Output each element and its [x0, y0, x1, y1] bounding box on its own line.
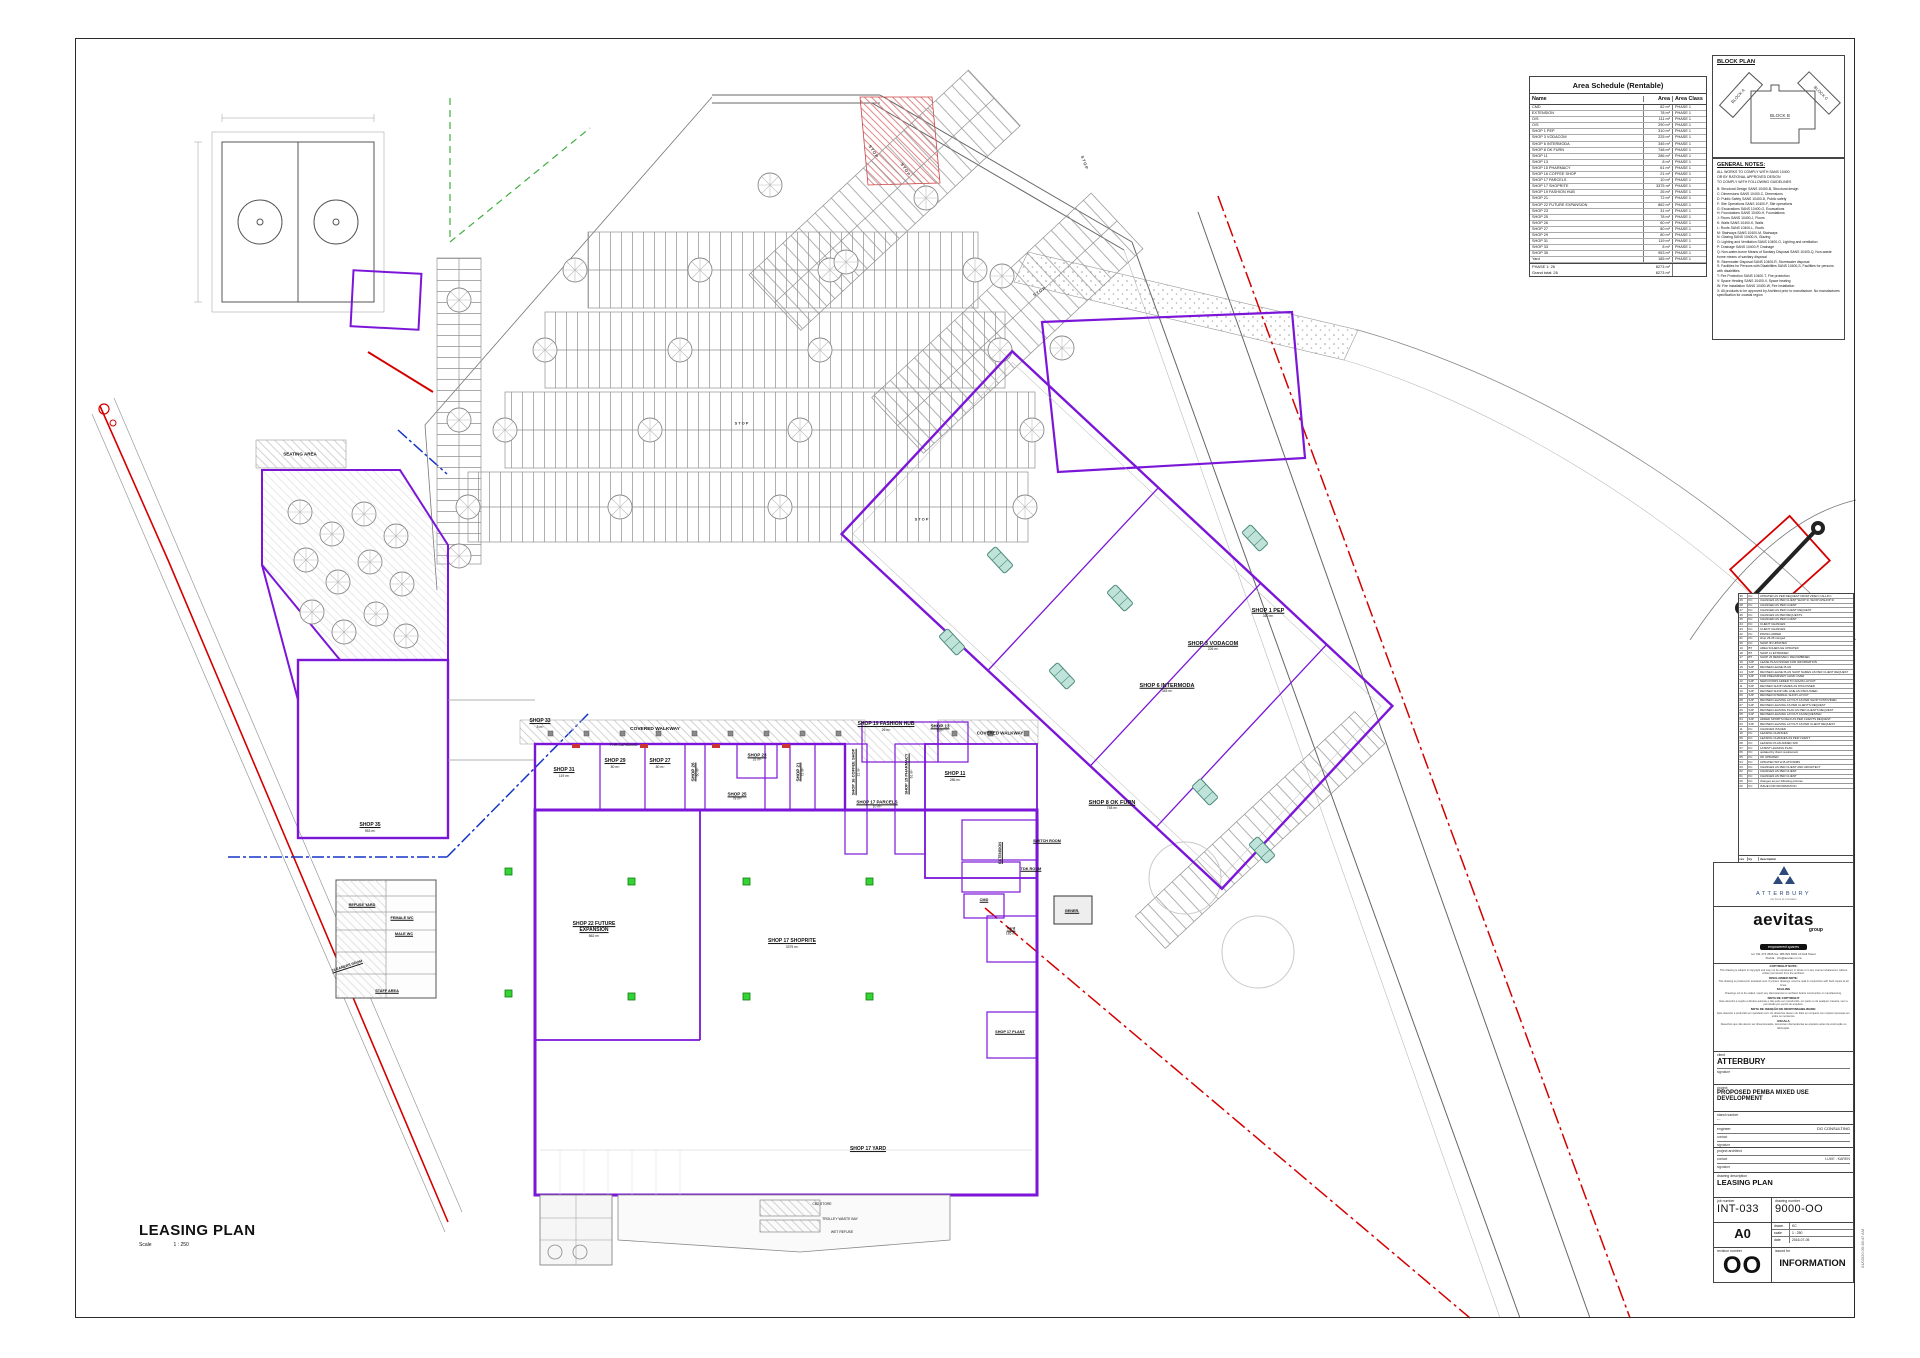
print-timestamp: 01/03/20 09:38:47 AM	[1860, 1229, 1865, 1268]
drawing-sheet: SEATING AREA SHOP 338 m² COVERED WALKWAY…	[0, 0, 1920, 1358]
sheet-border	[75, 38, 1855, 1318]
